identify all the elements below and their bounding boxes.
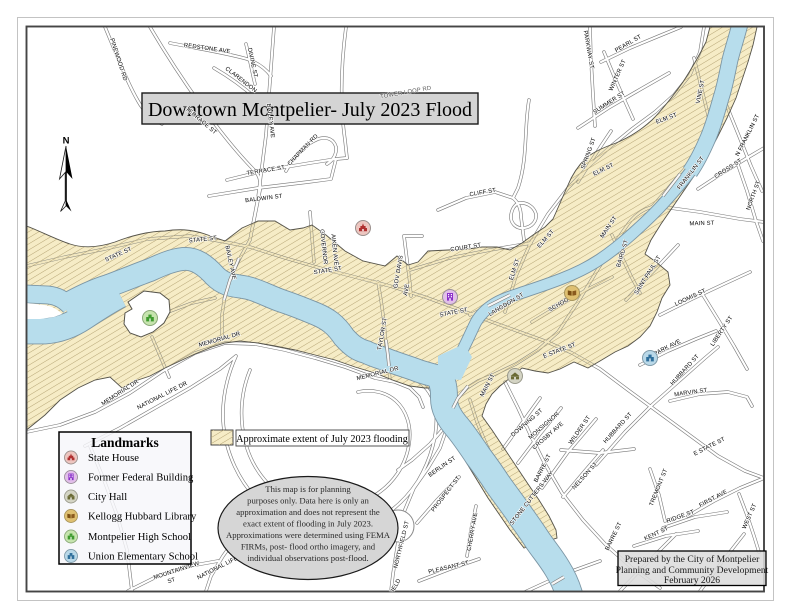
svg-text:exact extent of flooding in Ju: exact extent of flooding in July 2023. xyxy=(243,519,373,529)
svg-text:Montpelier High School: Montpelier High School xyxy=(88,532,191,543)
svg-text:MAIN ST: MAIN ST xyxy=(689,221,714,228)
svg-text:Approximate extent of July 202: Approximate extent of July 2023 flooding xyxy=(236,434,408,445)
svg-text:N: N xyxy=(63,136,70,147)
svg-text:Landmarks: Landmarks xyxy=(91,435,159,450)
svg-text:February 2026: February 2026 xyxy=(664,575,720,586)
svg-text:individual observations post-f: individual observations post-flood. xyxy=(247,553,368,563)
svg-text:Approximations were determined: Approximations were determined using FEM… xyxy=(226,530,391,540)
svg-text:purposes only. Data here is on: purposes only. Data here is only an xyxy=(247,496,369,506)
svg-text:Kellogg Hubbard Library: Kellogg Hubbard Library xyxy=(88,512,197,523)
svg-text:State House: State House xyxy=(88,453,139,464)
svg-text:FIRMs, post- flood ortho image: FIRMs, post- flood ortho imagery, and xyxy=(241,542,376,552)
svg-text:City Hall: City Hall xyxy=(88,492,127,503)
svg-text:Union Elementary School: Union Elementary School xyxy=(88,552,198,563)
svg-text:approximation and does not rep: approximation and does not represent the xyxy=(236,507,380,517)
svg-text:Prepared by the City of Montpe: Prepared by the City of Montpelier xyxy=(625,554,760,565)
svg-text:This map is for planning: This map is for planning xyxy=(265,484,351,494)
svg-text:Former Federal Building: Former Federal Building xyxy=(88,473,194,484)
